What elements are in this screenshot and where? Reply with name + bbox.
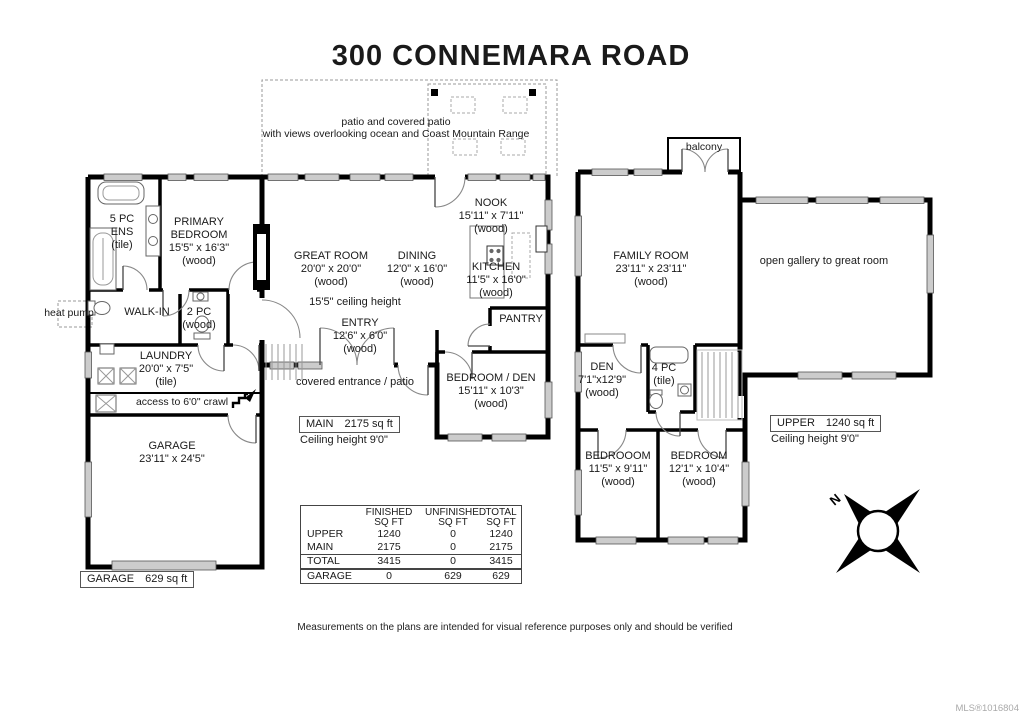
room-name-line: KITCHEN: [466, 261, 526, 274]
compass-rose-icon: N: [827, 489, 920, 573]
ceiling-height-note: 15'5" ceiling height: [309, 296, 401, 309]
room-name-line: BEDROOOM: [585, 450, 650, 463]
fireplace-icon: [253, 224, 270, 290]
note-line: Ceiling height 9'0": [771, 433, 859, 445]
room-name-line: access to 6'0" crawl: [136, 396, 228, 408]
patio-note-line2: with views overlooking ocean and Coast M…: [263, 128, 530, 140]
room-name-line: FAMILY ROOM: [613, 250, 688, 263]
main-ceiling-height: Ceiling height 9'0": [300, 434, 388, 447]
north-label: N: [827, 491, 844, 509]
room-name-line: 2 PC: [182, 306, 216, 319]
room-label-walk-in: WALK-IN: [124, 306, 169, 319]
room-dims: 23'11" x 23'11": [613, 263, 688, 276]
garage-door: [112, 561, 216, 570]
room-floor-type: (wood): [578, 387, 626, 400]
room-floor-type: (tile): [139, 376, 193, 389]
heat-pump-label: heat pump: [44, 307, 94, 319]
area-box-name: GARAGE: [87, 573, 134, 586]
room-name-line: ENTRY: [333, 317, 387, 330]
room-dims: 15'11" x 10'3": [446, 385, 535, 398]
room-dims: 11'5" x 9'11": [585, 463, 650, 476]
room-label-dining: DINING 12'0" x 16'0" (wood): [387, 250, 447, 289]
room-label-bedroom-b: BEDROOM 12'1" x 10'4" (wood): [669, 450, 729, 489]
room-label-great-room: GREAT ROOM 20'0" x 20'0" (wood): [294, 250, 368, 289]
room-label-primary-bedroom: PRIMARY BEDROOM 15'5" x 16'3" (wood): [169, 216, 229, 268]
room-floor-type: (wood): [182, 319, 216, 332]
floor-plan-page: N 300 CONNEMARA ROAD patio and covered p…: [0, 0, 1023, 723]
room-label-ensuite: 5 PC ENS (tile): [110, 213, 134, 252]
laundry-sink-icon: [100, 344, 114, 354]
room-label-laundry: LAUNDRY 20'0" x 7'5" (tile): [139, 350, 193, 389]
balcony-label: balcony: [686, 141, 722, 153]
crawl-access-label: access to 6'0" crawl: [136, 396, 228, 408]
note-line: 15'5" ceiling height: [309, 296, 401, 309]
cabinet-icon: [585, 334, 625, 343]
patio-note-line1: patio and covered patio: [263, 116, 530, 128]
room-floor-type: (wood): [459, 223, 524, 236]
room-dims: 20'0" x 20'0": [294, 263, 368, 276]
room-name-line: DINING: [387, 250, 447, 263]
room-dims: 15'5" x 16'3": [169, 242, 229, 255]
room-dims: 15'11" x 7'11": [459, 210, 524, 223]
door-swings: [123, 149, 728, 458]
area-box-value: 1240 sq ft: [826, 417, 874, 430]
upper-stairs-icon: [697, 350, 742, 420]
room-name-line: 4 PC: [652, 362, 676, 375]
room-name-line: ENS: [110, 226, 134, 239]
room-name-line: PRIMARY: [169, 216, 229, 229]
mls-watermark: MLS®1016804: [955, 703, 1019, 714]
page-title: 300 CONNEMARA ROAD: [332, 40, 691, 73]
room-floor-type: (wood): [446, 398, 535, 411]
patio-note: patio and covered patio with views overl…: [263, 116, 530, 140]
room-dims: 7'1"x12'9": [578, 374, 626, 387]
table-row-total: TOTAL 3415 0 3415: [301, 554, 521, 568]
header-total: TOTAL SQ FT: [481, 508, 521, 528]
room-name-line: heat pump: [44, 307, 94, 319]
room-label-kitchen: KITCHEN 11'5" x 16'0" (wood): [466, 261, 526, 300]
open-gallery-label: open gallery to great room: [760, 255, 888, 268]
room-name-line: NOOK: [459, 197, 524, 210]
garage-area-box: GARAGE 629 sq ft: [80, 571, 194, 588]
room-floor-type: (tile): [652, 375, 676, 388]
garage-table: GARAGE 0 629 629: [300, 569, 522, 584]
wall-oven-icon: [536, 226, 547, 252]
room-label-garage: GARAGE 23'11" x 24'5": [139, 440, 205, 466]
room-floor-type: (wood): [333, 343, 387, 356]
room-floor-type: (wood): [613, 276, 688, 289]
area-box-value: 629 sq ft: [145, 573, 187, 586]
upper-area-box: UPPER 1240 sq ft: [770, 415, 881, 432]
room-label-2pc: 2 PC (wood): [182, 306, 216, 332]
room-name-line: BEDROOM: [669, 450, 729, 463]
note-line: covered entrance / patio: [296, 376, 414, 389]
patio-post-icon: [431, 89, 438, 96]
note-line: Ceiling height 9'0": [300, 434, 388, 446]
room-floor-type: (wood): [466, 287, 526, 300]
room-label-nook: NOOK 15'11" x 7'11" (wood): [459, 197, 524, 236]
vanity-icon: [146, 206, 160, 256]
door-leaves: [123, 149, 728, 458]
room-label-pantry: PANTRY: [499, 313, 543, 326]
room-name-line: BEDROOM / DEN: [446, 372, 535, 385]
area-box-name: UPPER: [777, 417, 815, 430]
main-area-box: MAIN 2175 sq ft: [299, 416, 400, 433]
room-floor-type: (tile): [110, 239, 134, 252]
header-finished: FINISHED SQ FT: [353, 508, 425, 528]
covered-entrance-label: covered entrance / patio: [296, 376, 414, 389]
room-name-line: GARAGE: [139, 440, 205, 453]
room-dims: 23'11" x 24'5": [139, 453, 205, 466]
upper-ceiling-height: Ceiling height 9'0": [771, 433, 859, 446]
room-dims: 12'6" x 6'0": [333, 330, 387, 343]
table-row-garage: GARAGE 0 629 629: [301, 570, 521, 583]
room-name-line: WALK-IN: [124, 306, 169, 319]
sqft-table-header: FINISHED SQ FT UNFINISHED SQ FT TOTAL SQ…: [301, 506, 521, 528]
room-name-line: LAUNDRY: [139, 350, 193, 363]
room-label-entry: ENTRY 12'6" x 6'0" (wood): [333, 317, 387, 356]
room-label-den: DEN 7'1"x12'9" (wood): [578, 361, 626, 400]
area-box-value: 2175 sq ft: [345, 418, 393, 431]
room-dims: 20'0" x 7'5": [139, 363, 193, 376]
room-dims: 12'0" x 16'0": [387, 263, 447, 276]
room-name-line: 5 PC: [110, 213, 134, 226]
room-name-line: balcony: [686, 141, 722, 153]
table-row-upper: UPPER 1240 0 1240: [301, 528, 521, 541]
bathtub-icon: [650, 347, 688, 363]
room-floor-type: (wood): [387, 276, 447, 289]
room-label-bedroom-den: BEDROOM / DEN 15'11" x 10'3" (wood): [446, 372, 535, 411]
room-name-line: GREAT ROOM: [294, 250, 368, 263]
room-dims: 12'1" x 10'4": [669, 463, 729, 476]
room-floor-type: (wood): [294, 276, 368, 289]
note-line: open gallery to great room: [760, 255, 888, 268]
header-unfinished: UNFINISHED SQ FT: [425, 508, 481, 528]
patio-post-icon: [529, 89, 536, 96]
crawl-access-arrow-icon: [233, 389, 256, 408]
room-name-line: BEDROOM: [169, 229, 229, 242]
room-dims: 11'5" x 16'0": [466, 274, 526, 287]
room-floor-type: (wood): [169, 255, 229, 268]
room-floor-type: (wood): [585, 476, 650, 489]
table-row-main: MAIN 2175 0 2175: [301, 541, 521, 554]
room-name-line: PANTRY: [499, 313, 543, 326]
sqft-table: FINISHED SQ FT UNFINISHED SQ FT TOTAL SQ…: [300, 505, 522, 569]
toilet-icon: [194, 333, 210, 339]
room-label-family-room: FAMILY ROOM 23'11" x 23'11" (wood): [613, 250, 688, 289]
area-box-name: MAIN: [306, 418, 334, 431]
room-floor-type: (wood): [669, 476, 729, 489]
room-name-line: DEN: [578, 361, 626, 374]
room-label-4pc: 4 PC (tile): [652, 362, 676, 388]
room-label-bedroom-a: BEDROOOM 11'5" x 9'11" (wood): [585, 450, 650, 489]
disclaimer-text: Measurements on the plans are intended f…: [297, 622, 732, 633]
